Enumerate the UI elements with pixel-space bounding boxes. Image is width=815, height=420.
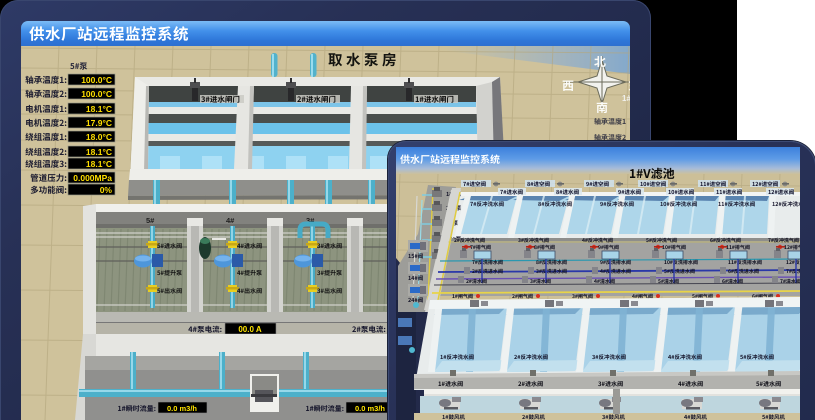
- svg-text:5#: 5#: [146, 216, 155, 225]
- svg-text:0.0 m3/h: 0.0 m3/h: [167, 404, 197, 413]
- svg-text:18.1°C: 18.1°C: [86, 104, 112, 114]
- svg-text:4#: 4#: [226, 216, 235, 225]
- svg-text:18.0°C: 18.0°C: [86, 132, 112, 142]
- svg-text:0.0 m3/h: 0.0 m3/h: [355, 404, 385, 413]
- svg-text:17.9°C: 17.9°C: [86, 118, 112, 128]
- svg-text:0.000MPa: 0.000MPa: [73, 173, 112, 183]
- svg-text:100.0°C: 100.0°C: [81, 75, 112, 85]
- svg-text:00.0 A: 00.0 A: [238, 325, 261, 334]
- svg-text:18.1°C: 18.1°C: [86, 159, 112, 169]
- svg-text:100.0°C: 100.0°C: [81, 89, 112, 99]
- svg-text:1#: 1#: [622, 94, 630, 103]
- svg-text:18.1°C: 18.1°C: [86, 147, 112, 157]
- svg-text:0%: 0%: [100, 185, 113, 195]
